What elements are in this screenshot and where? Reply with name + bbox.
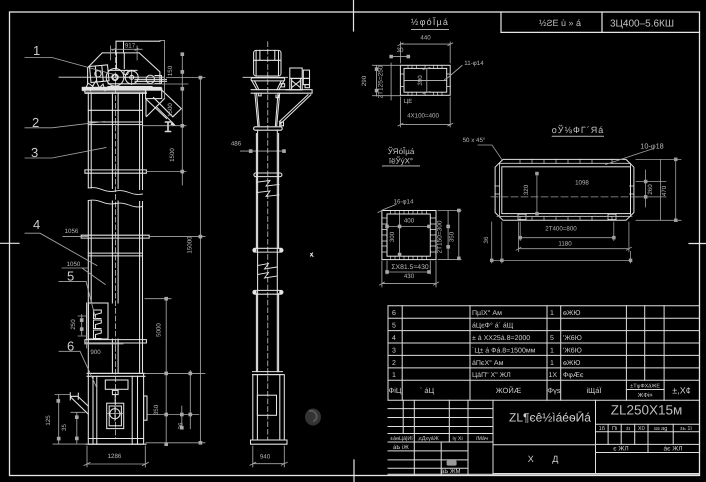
svg-text:5000: 5000 [156, 323, 163, 337]
svg-text:440: 440 [420, 35, 431, 42]
svg-text:½φóĬµá: ½φóĬµá [411, 17, 449, 27]
svg-text:1286: 1286 [108, 453, 122, 460]
svg-text:½ƧЕ ù » á: ½ƧЕ ù » á [539, 18, 581, 28]
svg-text:2: 2 [32, 115, 39, 130]
svg-text:2Т400=800: 2Т400=800 [545, 226, 577, 233]
svg-text:ЖОЙÆ: ЖОЙÆ [496, 386, 522, 395]
svg-text:320: 320 [523, 184, 530, 195]
svg-text:390: 390 [417, 75, 424, 86]
svg-text:Х0: Х0 [638, 426, 645, 432]
svg-text:2Т125=250: 2Т125=250 [378, 65, 385, 98]
svg-text:áє ЖЛ: áє ЖЛ [663, 446, 682, 453]
svg-text:іү Хі: іү Хі [453, 436, 463, 442]
svg-text:2: 2 [392, 360, 396, 367]
svg-text:10-φ18: 10-φ18 [640, 142, 663, 151]
svg-text:350: 350 [153, 404, 160, 415]
svg-text:ЖФі¤: ЖФі¤ [638, 392, 653, 399]
svg-text:11-φ14: 11-φ14 [464, 60, 484, 67]
svg-text:ѳЖЮ: ѳЖЮ [563, 310, 580, 317]
svg-text:˙Ц± á Фá.8=1500мм: ˙Ц± á Фá.8=1500мм [472, 346, 536, 354]
svg-text:1056: 1056 [65, 228, 79, 235]
svg-text:є ЖЛ: є ЖЛ [613, 446, 628, 453]
svg-text:35: 35 [61, 424, 68, 431]
svg-text:4: 4 [392, 335, 396, 342]
svg-text:1: 1 [550, 347, 554, 354]
svg-text:36: 36 [483, 236, 490, 243]
svg-text:áЬ ЖМ: áЬ ЖМ [441, 468, 460, 475]
svg-text:6: 6 [392, 310, 396, 317]
svg-text:Х Д: Х Д [528, 454, 567, 464]
svg-text:917: 917 [125, 43, 136, 50]
svg-text:±ı: ±ı [626, 426, 631, 432]
svg-text:áЦєФ° á´ áЩ: áЦєФ° á´ áЩ [472, 322, 514, 330]
svg-text:50 х 45°: 50 х 45° [463, 137, 486, 144]
svg-text:Фүѕ: Фүѕ [547, 386, 560, 395]
svg-text:1500: 1500 [167, 103, 174, 117]
svg-text:5: 5 [67, 269, 74, 284]
svg-text:ѳЖЮ: ѳЖЮ [563, 360, 580, 367]
svg-text:1098: 1098 [575, 180, 589, 187]
svg-text:470: 470 [661, 185, 668, 196]
svg-text:їМáҹ: їМáҹ [475, 436, 488, 442]
svg-text:1б: 1б [599, 425, 605, 432]
svg-text:áПєХ° Ам: áПєХ° Ам [472, 359, 504, 367]
svg-text:Пі: Пі [612, 425, 617, 432]
svg-text:оЎ⅛ФГ´Яá: оЎ⅛ФГ´Яá [552, 124, 604, 135]
svg-text:260: 260 [647, 184, 654, 195]
svg-text:±áѳЦá|Иї: ±áѳЦá|Иї [390, 436, 413, 442]
svg-text:± á ХХ25á.8=2000: ± á ХХ25á.8=2000 [472, 334, 530, 342]
svg-text:ЦáП" Х" ЖЛ: ЦáП" Х" ЖЛ [472, 371, 511, 379]
svg-text:ФφÆє: ФφÆє [563, 372, 584, 379]
svg-text:,єДхүáЖ: ,єДхүáЖ [418, 436, 439, 442]
svg-text:15000: 15000 [187, 236, 194, 254]
svg-text:430: 430 [404, 273, 415, 280]
svg-text:3: 3 [392, 347, 396, 354]
svg-text:300: 300 [389, 231, 396, 242]
svg-text:1050: 1050 [67, 261, 81, 268]
svg-text:ПµїХ° Ам: ПµїХ° Ам [472, 310, 502, 317]
svg-text:±ТѱФХáЖЕ: ±ТѱФХáЖЕ [630, 383, 660, 390]
svg-text:2Т150=300: 2Т150=300 [437, 220, 444, 253]
svg-text:350: 350 [449, 231, 456, 242]
svg-text:30: 30 [397, 47, 404, 54]
svg-text:5: 5 [392, 323, 396, 330]
svg-text:1180: 1180 [558, 241, 572, 248]
svg-text:±ь 1ї: ±ь 1ї [680, 426, 693, 432]
svg-text:36: 36 [178, 422, 185, 429]
svg-text:900: 900 [90, 349, 101, 356]
svg-text:īёЎýХ°: īёЎýХ° [389, 156, 413, 166]
svg-text:290: 290 [361, 75, 368, 86]
svg-text:´ áЦ: ´ áЦ [420, 386, 435, 395]
svg-text:486: 486 [231, 141, 242, 148]
svg-text:1: 1 [392, 372, 396, 379]
svg-text:'Ж6Ю: 'Ж6Ю [563, 335, 582, 342]
svg-text:4Х100=400: 4Х100=400 [407, 113, 439, 120]
svg-text:ЦЕ: ЦЕ [404, 98, 412, 105]
svg-text:16-φ14: 16-φ14 [394, 199, 414, 206]
svg-text:ΣХ81.5=430: ΣХ81.5=430 [391, 264, 428, 271]
svg-text:1500: 1500 [169, 148, 176, 162]
svg-text:1Х: 1Х [549, 372, 558, 379]
svg-text:1: 1 [550, 310, 554, 317]
svg-text:1: 1 [550, 360, 554, 367]
svg-text:5: 5 [550, 335, 554, 342]
svg-text:ФіЦ: ФіЦ [389, 386, 402, 395]
svg-text:±,Х¢: ±,Х¢ [672, 386, 690, 396]
svg-text:1: 1 [33, 43, 40, 58]
svg-text:400: 400 [404, 218, 415, 225]
svg-text:áЬ іЖ: áЬ іЖ [393, 444, 409, 451]
svg-text:150: 150 [167, 65, 174, 76]
svg-text:ZL¶єê½ìáéѳӢá: ZL¶єê½ìáéѳӢá [509, 411, 591, 425]
svg-text:4: 4 [33, 217, 40, 232]
svg-text:іЩáЇ: іЩáЇ [587, 386, 603, 395]
svg-text:250: 250 [70, 319, 77, 330]
svg-text:'Ж6Ю: 'Ж6Ю [563, 347, 582, 354]
svg-text:3Ц400–5.6КШ: 3Ц400–5.6КШ [610, 19, 674, 30]
svg-text:6: 6 [67, 339, 74, 354]
svg-text:⅏ ag: ⅏ ag [653, 426, 668, 432]
svg-text:ZL250Х15м: ZL250Х15м [611, 403, 683, 418]
svg-text:940: 940 [260, 454, 271, 461]
svg-text:ЎЯóĬµá: ЎЯóĬµá [388, 146, 415, 156]
svg-text:125: 125 [45, 415, 52, 426]
svg-text:3: 3 [31, 145, 38, 160]
